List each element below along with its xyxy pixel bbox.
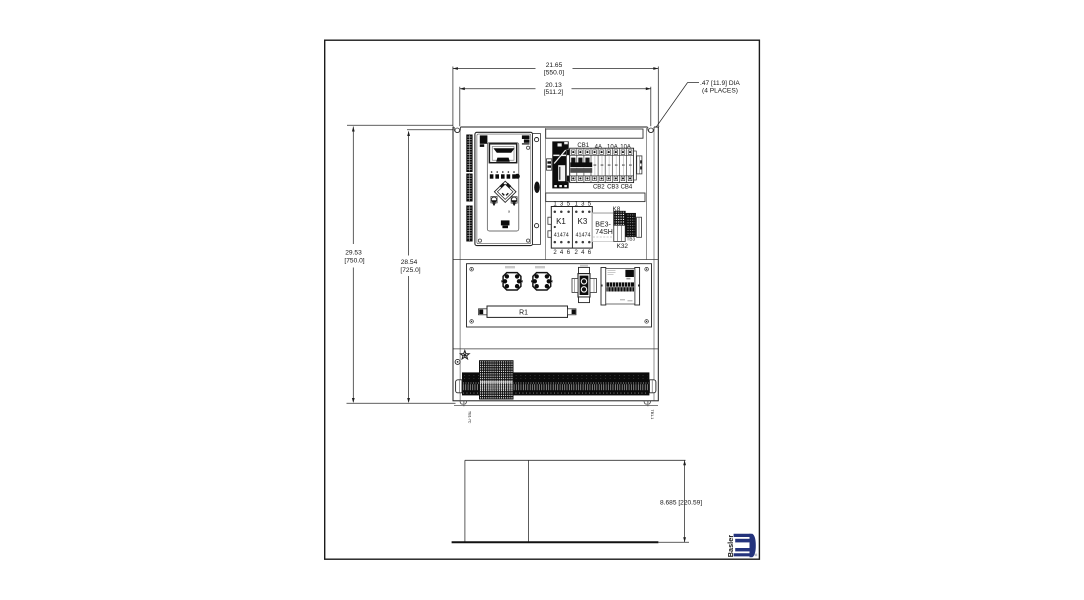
svg-text:TB1-7C: TB1-7C bbox=[468, 411, 472, 424]
svg-text:29.53: 29.53 bbox=[345, 250, 362, 257]
svg-text:[550.0]: [550.0] bbox=[544, 70, 564, 77]
svg-text:BE3-: BE3- bbox=[595, 221, 611, 228]
svg-text:CB2: CB2 bbox=[593, 184, 605, 190]
svg-text:K32: K32 bbox=[617, 243, 629, 250]
svg-text:TB3: TB3 bbox=[627, 236, 636, 241]
svg-text:41474: 41474 bbox=[554, 233, 569, 239]
svg-text:CB3: CB3 bbox=[607, 184, 619, 190]
svg-text:74SH: 74SH bbox=[595, 229, 613, 236]
svg-text:(4 PLACES): (4 PLACES) bbox=[702, 88, 738, 95]
svg-text:4A: 4A bbox=[595, 144, 602, 150]
svg-text:[750.0]: [750.0] bbox=[344, 258, 364, 265]
svg-text:20.13: 20.13 bbox=[545, 82, 562, 89]
svg-text:K1: K1 bbox=[556, 217, 566, 226]
svg-text:K3: K3 bbox=[578, 217, 588, 226]
svg-text:CB4: CB4 bbox=[621, 184, 633, 190]
svg-text:10A: 10A bbox=[607, 144, 618, 150]
svg-text:a: a bbox=[508, 210, 510, 214]
svg-text:[725.0]: [725.0] bbox=[400, 267, 420, 274]
svg-text:41474: 41474 bbox=[576, 233, 591, 239]
svg-text:R1: R1 bbox=[519, 310, 528, 317]
svg-text:CB1: CB1 bbox=[577, 143, 589, 149]
svg-text:8.685 [220.59]: 8.685 [220.59] bbox=[660, 500, 702, 507]
svg-text:21.65: 21.65 bbox=[546, 62, 563, 69]
svg-text:28.54: 28.54 bbox=[401, 259, 418, 266]
svg-text:[511.2]: [511.2] bbox=[544, 89, 564, 96]
svg-text:10A: 10A bbox=[620, 144, 631, 150]
svg-text:.47 [11.9] DIA: .47 [11.9] DIA bbox=[700, 80, 740, 87]
svg-text:TB1-1: TB1-1 bbox=[650, 410, 654, 420]
